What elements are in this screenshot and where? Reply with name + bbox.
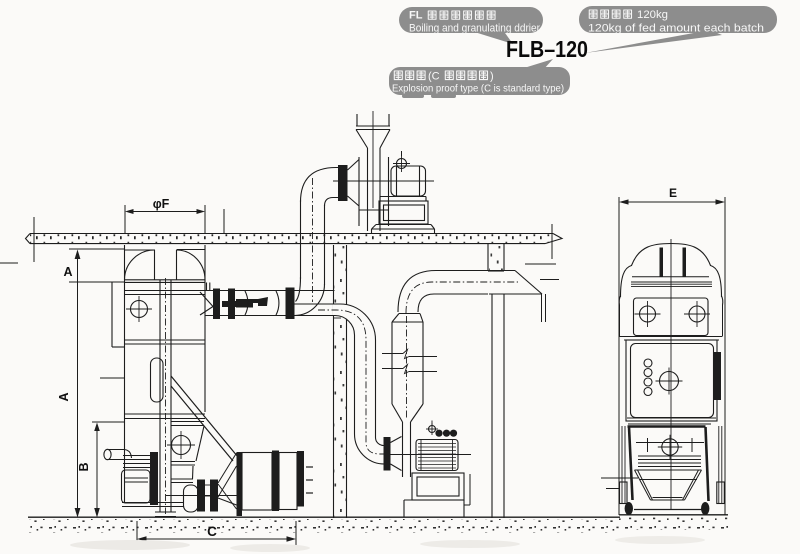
svg-text:C: C [207,524,217,539]
svg-text:120kg: 120kg [637,9,668,21]
svg-text:120kg of fed amount each batch: 120kg of fed amount each batch [588,23,764,35]
svg-text:FLB–120: FLB–120 [506,36,588,62]
svg-text:B: B [77,462,91,471]
svg-text:(C: (C [428,71,440,83]
svg-text:A: A [63,265,72,279]
svg-text:φF: φF [153,197,170,211]
svg-text:A: A [57,392,71,401]
svg-text:Explosion proof type (C is sta: Explosion proof type (C is standard type… [392,83,564,95]
svg-text:): ) [490,71,494,83]
svg-text:FL: FL [409,10,423,22]
svg-text:Boiling and granulating ddrier: Boiling and granulating ddrier [409,23,540,35]
svg-text:E: E [669,186,677,200]
